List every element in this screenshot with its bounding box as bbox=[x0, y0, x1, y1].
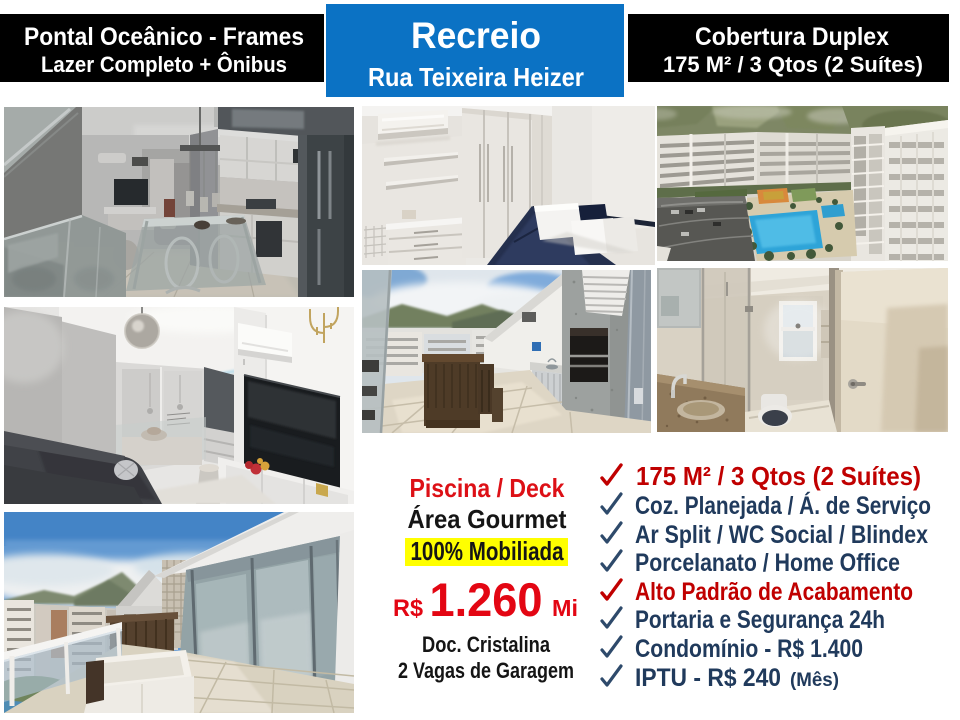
svg-text:Área Gourmet: Área Gourmet bbox=[408, 504, 567, 534]
svg-text:175 M² / 3 Qtos (2 Suítes): 175 M² / 3 Qtos (2 Suítes) bbox=[636, 461, 921, 491]
svg-text:Porcelanato / Home Office: Porcelanato / Home Office bbox=[635, 549, 900, 577]
svg-text:1.260: 1.260 bbox=[430, 573, 543, 626]
svg-text:Lazer Completo + Ônibus: Lazer Completo + Ônibus bbox=[41, 52, 287, 77]
svg-text:Piscina / Deck: Piscina / Deck bbox=[410, 473, 565, 503]
svg-text:Portaria e Segurança 24h: Portaria e Segurança 24h bbox=[635, 606, 885, 634]
svg-text:Rua Teixeira Heizer: Rua Teixeira Heizer bbox=[368, 62, 584, 92]
svg-text:Recreio: Recreio bbox=[411, 15, 541, 56]
svg-text:Cobertura Duplex: Cobertura Duplex bbox=[695, 23, 889, 51]
svg-text:R$: R$ bbox=[393, 595, 424, 622]
svg-text:Ar Split / WC Social / Blinde: Ar Split / WC Social / Blindex bbox=[635, 521, 928, 549]
svg-text:Coz. Planejada / Á. de Serviço: Coz. Planejada / Á. de Serviço bbox=[635, 491, 931, 520]
svg-text:IPTU - R$ 240: IPTU - R$ 240 bbox=[635, 664, 781, 692]
svg-text:2 Vagas de Garagem: 2 Vagas de Garagem bbox=[398, 658, 574, 683]
svg-text:Pontal Oceânico - Frames: Pontal Oceânico - Frames bbox=[24, 23, 304, 51]
svg-text:(Mês): (Mês) bbox=[790, 670, 839, 691]
svg-text:Alto Padrão de Acabamento: Alto Padrão de Acabamento bbox=[635, 578, 913, 606]
svg-text:175 M² / 3 Qtos (2 Suítes): 175 M² / 3 Qtos (2 Suítes) bbox=[663, 52, 923, 77]
svg-text:Doc. Cristalina: Doc. Cristalina bbox=[422, 632, 551, 657]
svg-text:100% Mobiliada: 100% Mobiliada bbox=[411, 536, 564, 566]
svg-text:Condomínio - R$ 1.400: Condomínio - R$ 1.400 bbox=[635, 635, 863, 663]
svg-text:Mi: Mi bbox=[552, 595, 578, 621]
